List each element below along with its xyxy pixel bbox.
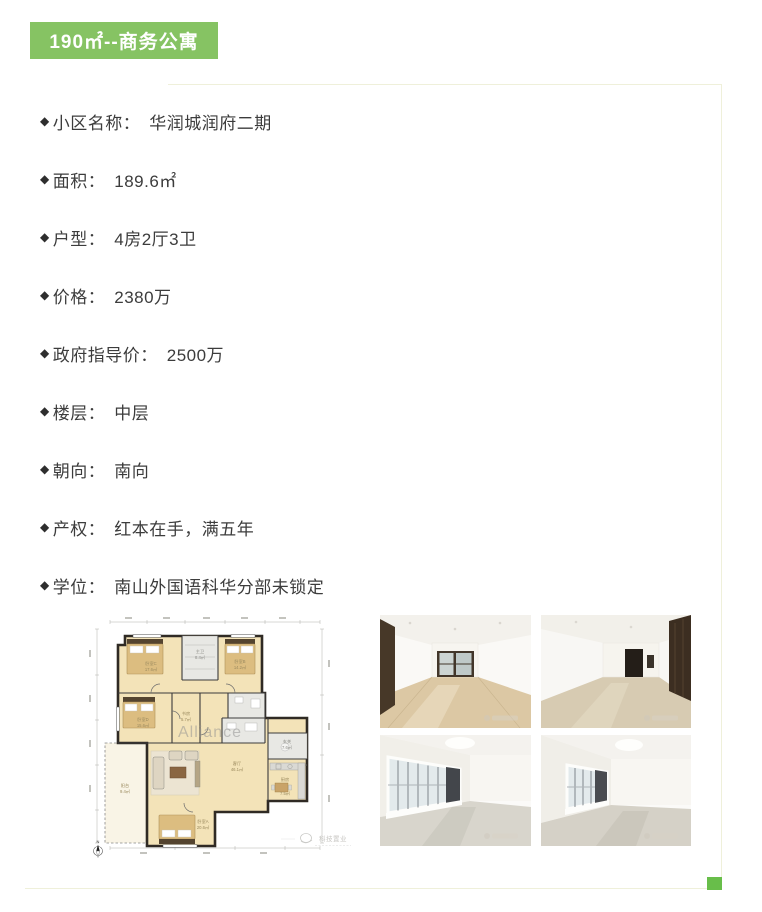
photo-watermark xyxy=(484,715,518,721)
diamond-bullet-icon: ◆ xyxy=(40,289,50,301)
svg-text:卧室D: 卧室D xyxy=(137,716,148,723)
item-label: 政府指导价 xyxy=(53,341,141,366)
photo-watermark xyxy=(484,833,518,839)
photo-watermark xyxy=(644,833,678,839)
balcony-door xyxy=(437,651,474,677)
listing-article: 190㎡--商务公寓 ◆ 小区名称 ： 华润城润府二期 ◆ 面积 ： 189.6… xyxy=(0,0,762,912)
svg-text:14.2㎡: 14.2㎡ xyxy=(234,664,247,670)
diamond-bullet-icon: ◆ xyxy=(40,521,50,533)
svg-text:主卫: 主卫 xyxy=(196,648,204,654)
diamond-bullet-icon: ◆ xyxy=(40,347,50,359)
corner-accent-square xyxy=(707,877,722,890)
item-separator: ： xyxy=(88,457,106,482)
svg-text:Alliance: Alliance xyxy=(178,724,242,741)
item-separator: ： xyxy=(88,399,106,424)
item-label: 朝向 xyxy=(53,457,88,482)
item-label: 小区名称 xyxy=(53,109,123,134)
dark-curtain xyxy=(595,770,607,805)
list-item-school: ◆ 学位 ： 南山外国语科华分部未锁定 xyxy=(40,556,660,614)
dark-door xyxy=(380,619,395,715)
item-separator: ： xyxy=(140,341,158,366)
svg-text:9.4㎡: 9.4㎡ xyxy=(120,788,131,794)
svg-text:20.6㎡: 20.6㎡ xyxy=(197,824,210,830)
living-room-furniture xyxy=(151,751,200,795)
svg-text:8.4㎡: 8.4㎡ xyxy=(195,654,206,660)
compass-icon: N xyxy=(94,839,103,858)
list-item-ownership: ◆ 产权 ： 红本在手，满五年 xyxy=(40,498,660,556)
ceiling-light xyxy=(615,739,643,751)
dark-doorway xyxy=(625,649,643,677)
svg-text:7.5㎡: 7.5㎡ xyxy=(280,790,291,796)
frame-right-line xyxy=(721,84,722,889)
list-item-area: ◆ 面积 ： 189.6㎡ xyxy=(40,150,660,208)
agency-watermark: 科技置业 xyxy=(281,834,351,846)
photo-living-room-b[interactable] xyxy=(541,615,691,728)
svg-text:书房: 书房 xyxy=(182,710,190,717)
dark-wardrobe xyxy=(669,615,691,701)
list-item-guide-price: ◆ 政府指导价 ： 2500万 xyxy=(40,324,660,382)
title-badge-label: 190㎡--商务公寓 xyxy=(49,27,198,54)
list-item-floor: ◆ 楼层 ： 中层 xyxy=(40,382,660,440)
property-detail-list: ◆ 小区名称 ： 华润城润府二期 ◆ 面积 ： 189.6㎡ ◆ 户型 ： 4房… xyxy=(40,92,660,614)
item-value: 2380万 xyxy=(114,283,171,308)
item-value: 4房2厅3卫 xyxy=(114,225,196,250)
list-item-orientation: ◆ 朝向 ： 南向 xyxy=(40,440,660,498)
svg-text:5.7㎡: 5.7㎡ xyxy=(181,716,192,722)
diamond-bullet-icon: ◆ xyxy=(40,173,50,185)
item-label: 价格 xyxy=(53,283,88,308)
photo-living-room-a[interactable] xyxy=(380,615,531,728)
diamond-bullet-icon: ◆ xyxy=(40,463,50,475)
svg-text:46.1㎡: 46.1㎡ xyxy=(231,766,244,772)
item-label: 面积 xyxy=(53,167,88,192)
item-value: 红本在手，满五年 xyxy=(114,515,254,540)
svg-text:卧室B: 卧室B xyxy=(234,658,245,665)
ceiling-light xyxy=(445,737,475,749)
list-item-price: ◆ 价格 ： 2380万 xyxy=(40,266,660,324)
diamond-bullet-icon: ◆ xyxy=(40,579,50,591)
photo-bedroom-a[interactable] xyxy=(380,735,531,846)
item-label: 楼层 xyxy=(53,399,88,424)
item-value: 中层 xyxy=(114,399,149,424)
svg-text:客厅: 客厅 xyxy=(233,760,241,767)
frame-bottom-line xyxy=(25,888,722,889)
svg-text:科技置业: 科技置业 xyxy=(319,834,347,843)
title-badge: 190㎡--商务公寓 xyxy=(30,22,218,59)
item-separator: ： xyxy=(88,283,106,308)
item-label: 户型 xyxy=(53,225,88,250)
item-value: 南向 xyxy=(114,457,149,482)
item-separator: ： xyxy=(123,109,141,134)
svg-text:卧室A: 卧室A xyxy=(197,818,208,825)
item-separator: ： xyxy=(88,515,106,540)
item-value: 南山外国语科华分部未锁定 xyxy=(114,573,324,598)
svg-text:玄关: 玄关 xyxy=(283,738,291,745)
item-label: 学位 xyxy=(53,573,88,598)
item-value: 2500万 xyxy=(167,341,224,366)
frame-top-line xyxy=(168,84,721,85)
svg-text:7.6㎡: 7.6㎡ xyxy=(282,744,293,750)
diamond-bullet-icon: ◆ xyxy=(40,231,50,243)
photo-watermark xyxy=(644,715,678,721)
list-item-community: ◆ 小区名称 ： 华润城润府二期 xyxy=(40,92,660,150)
item-separator: ： xyxy=(88,573,106,598)
dark-curtain xyxy=(446,767,460,805)
item-label: 产权 xyxy=(53,515,88,540)
svg-text:17.6㎡: 17.6㎡ xyxy=(145,666,158,672)
svg-text:卧室C: 卧室C xyxy=(145,660,156,667)
diamond-bullet-icon: ◆ xyxy=(40,405,50,417)
svg-text:15.6㎡: 15.6㎡ xyxy=(137,722,150,728)
item-separator: ： xyxy=(88,225,106,250)
item-separator: ： xyxy=(88,167,106,192)
photo-bedroom-b[interactable] xyxy=(541,735,691,846)
svg-text:厨房: 厨房 xyxy=(281,776,289,783)
list-item-layout: ◆ 户型 ： 4房2厅3卫 xyxy=(40,208,660,266)
floor-plan-image[interactable]: 卧室C 17.6㎡ 主卫 8.4㎡ 卧室B 14.2㎡ 卧室D 15.6㎡ 书房… xyxy=(85,615,362,867)
diamond-bullet-icon: ◆ xyxy=(40,115,50,127)
item-value: 华润城润府二期 xyxy=(149,109,272,134)
alliance-watermark: Alliance xyxy=(178,724,242,741)
item-value: 189.6㎡ xyxy=(114,167,177,192)
svg-text:N: N xyxy=(97,839,100,844)
svg-text:阳台: 阳台 xyxy=(121,782,129,789)
